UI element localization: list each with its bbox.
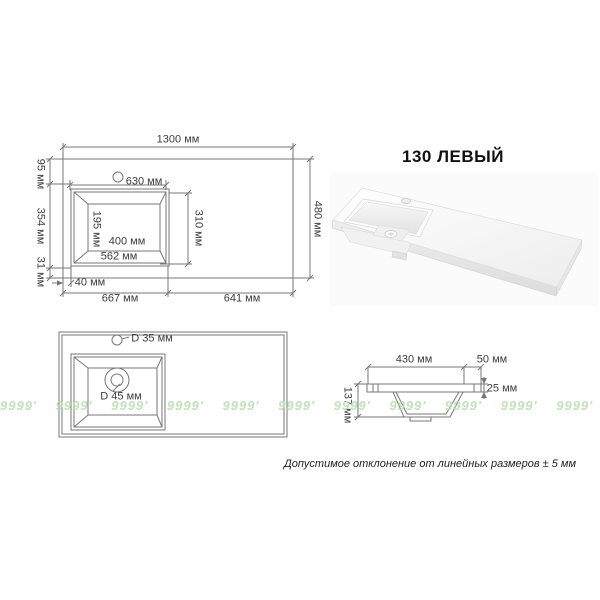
sink-faucet-hole [402,198,411,203]
model-title: 130 ЛЕВЫЙ [402,147,504,167]
dim-front-offset: 31 мм [35,257,46,287]
dim-basin-top-width: 562 мм [101,252,138,263]
dim-overall-depth: 480 мм [312,201,323,238]
dim-side-offset: 40 мм [75,278,105,289]
holes-view-drawing [59,332,287,437]
dim-left-section: 667 мм [102,294,139,305]
dim-right-section: 641 мм [224,294,261,305]
sink-3d-render [330,172,598,306]
faucet-hole-circle [113,172,123,182]
top-view-drawing [46,143,314,297]
dim-back-offset: 95 мм [35,159,46,189]
dim-faucet-hole: D 35 мм [131,334,172,345]
countertop-outline-2 [59,332,287,437]
drain-stub [410,417,431,421]
dim-section-right-offset: 50 мм [477,355,507,366]
dim-overall-width: 1300 мм [157,135,200,146]
dim-section-basin-width: 430 мм [396,355,433,366]
technical-linework [0,0,600,600]
tolerance-note: Допустимое отклонение от линейных размер… [284,458,576,470]
dim-basin-depth: 310 мм [193,210,204,247]
drawing-sheet: 130 ЛЕВЫЙ 1300 мм 480 мм 95 мм 354 мм 31… [0,0,600,600]
dim-basin-bottom-width: 400 мм [109,237,146,248]
dim-basin-span: 354 мм [35,208,46,245]
drain-hole-circle [105,368,129,392]
dim-section-thickness: 25 мм [487,384,517,395]
dim-drain-offset: 195 мм [91,211,102,248]
watermark-row: 9999' 9999' 9999' 9999' 9999' 9999' 9999… [0,398,600,416]
slab-section [367,384,481,392]
dim-basin-back-width: 630 мм [126,177,163,188]
faucet-hole-circle-2 [112,335,122,345]
